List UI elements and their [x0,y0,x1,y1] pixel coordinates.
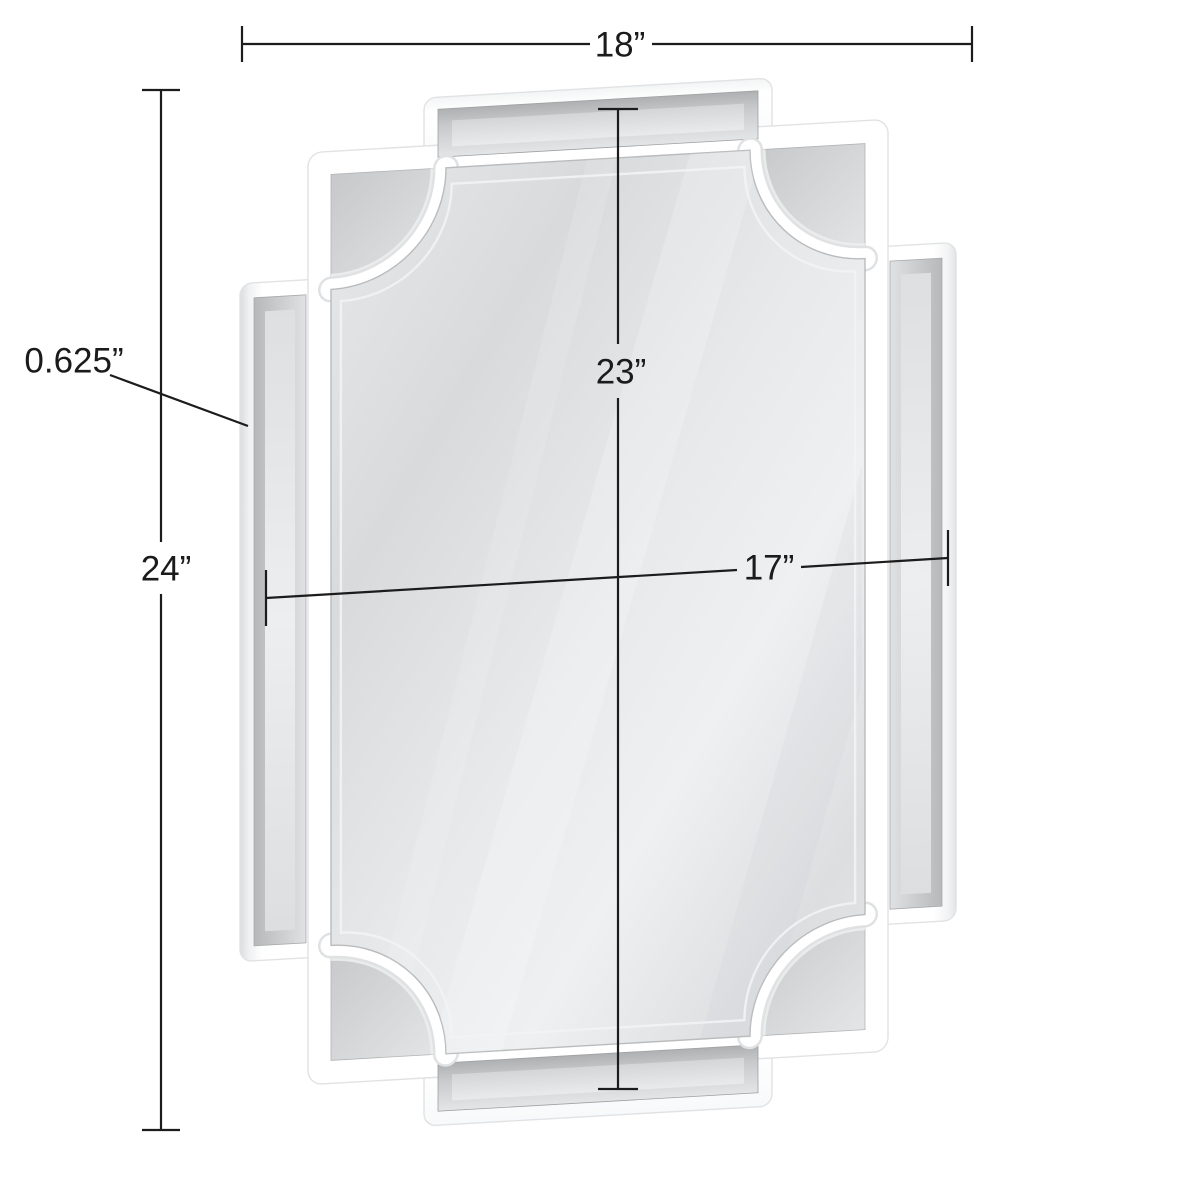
mirror-dimension-diagram: 18” 24” 23” 17” 0.625 [0,0,1200,1200]
mirror [240,67,956,1136]
left-wing-beveled-panel [254,295,306,946]
mirror-height-label: 23” [596,353,647,392]
diagram-canvas: 18” 24” 23” 17” 0.625 [0,0,1200,1200]
overall-height-dimension: 24” [141,90,192,1130]
right-wing-beveled-panel [890,258,942,909]
mirror-width-label: 17” [744,549,795,588]
leader-line [110,375,248,426]
overall-width-dimension: 18” [242,26,972,65]
overall-width-label: 18” [595,26,646,65]
frame-depth-label: 0.625” [24,342,123,381]
overall-height-label: 24” [141,550,192,589]
frame-depth-callout: 0.625” [24,342,248,426]
